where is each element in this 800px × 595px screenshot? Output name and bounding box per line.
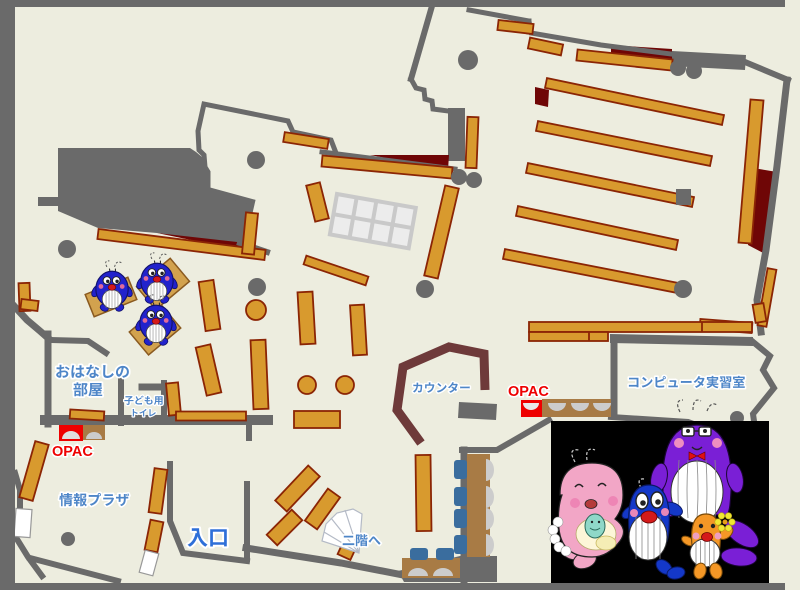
svg-text:OPAC: OPAC bbox=[508, 384, 549, 400]
svg-text:OPAC: OPAC bbox=[52, 444, 93, 460]
